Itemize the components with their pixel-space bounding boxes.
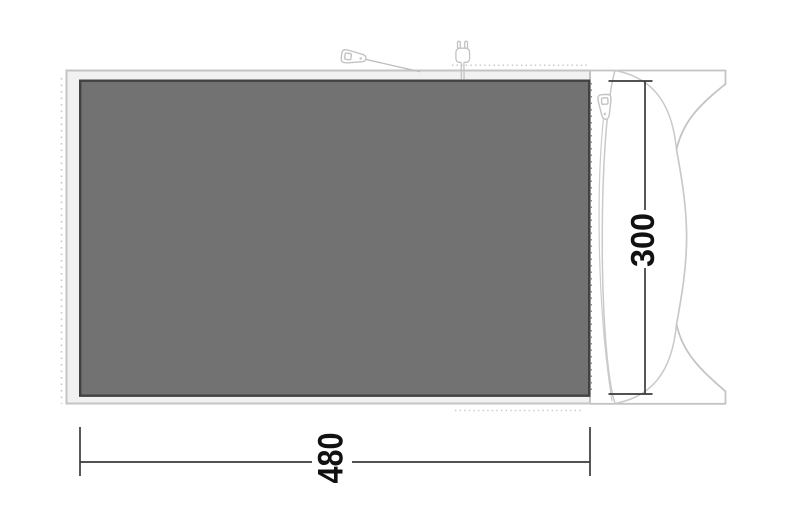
svg-text:300: 300 bbox=[624, 213, 661, 267]
svg-text:480: 480 bbox=[312, 433, 351, 484]
